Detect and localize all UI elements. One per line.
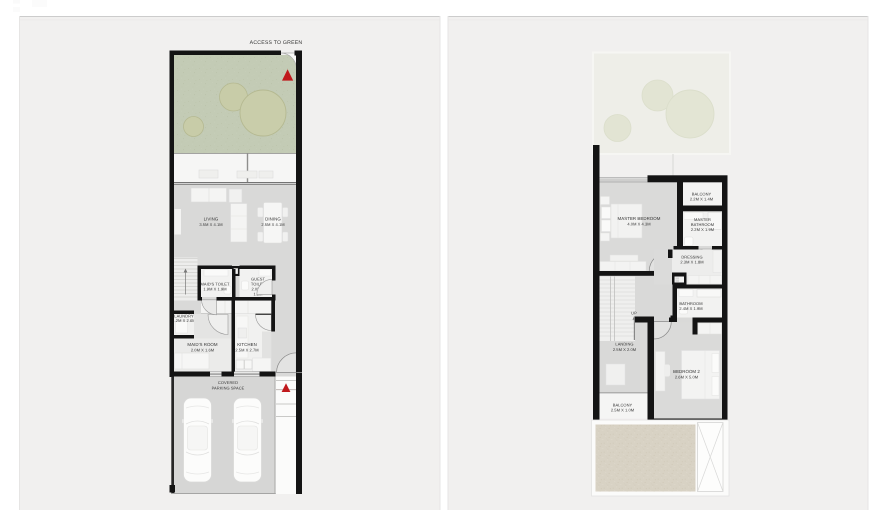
svg-text:2.0M X 1.6M: 2.0M X 1.6M [191,348,214,353]
svg-text:KITCHEN: KITCHEN [237,342,257,347]
svg-text:2.5M X 4.1M: 2.5M X 4.1M [261,222,284,227]
svg-text:LANDING: LANDING [615,342,633,347]
svg-text:UP: UP [631,311,637,316]
svg-text:MASTER BEDROOM: MASTER BEDROOM [618,216,661,221]
svg-text:2.5M X 2.0M: 2.5M X 2.0M [613,347,636,352]
svg-text:2.2M X 1.9M: 2.2M X 1.9M [691,227,714,232]
svg-text:1.2M X 2.6M: 1.2M X 2.6M [172,318,195,323]
svg-text:COVERED: COVERED [218,380,238,385]
svg-text:ACCESS TO GREEN: ACCESS TO GREEN [250,40,303,46]
svg-text:2.4M X 1.9M: 2.4M X 1.9M [679,306,702,311]
svg-text:2.5M X 1.0M: 2.5M X 1.0M [611,408,634,413]
svg-text:3.5M X 4.1M: 3.5M X 4.1M [199,222,222,227]
svg-text:4.0M X 4.3M: 4.0M X 4.3M [627,222,650,227]
svg-text:2.6M X 5.0M: 2.6M X 5.0M [675,375,698,380]
svg-text:DINING: DINING [265,217,281,222]
svg-text:2.3M X 1.8M: 2.3M X 1.8M [680,260,703,265]
svg-text:BEDROOM 2: BEDROOM 2 [673,369,700,374]
svg-text:2.2M X 1.4M: 2.2M X 1.4M [690,197,713,202]
svg-text:2.5M X 2.7M: 2.5M X 2.7M [235,348,258,353]
svg-text:LIVING: LIVING [204,217,219,222]
svg-text:1.9M X 1.9M: 1.9M X 1.9M [203,287,226,292]
svg-text:PARKING SPACE: PARKING SPACE [212,386,245,391]
svg-text:MAID'S ROOM: MAID'S ROOM [187,342,217,347]
